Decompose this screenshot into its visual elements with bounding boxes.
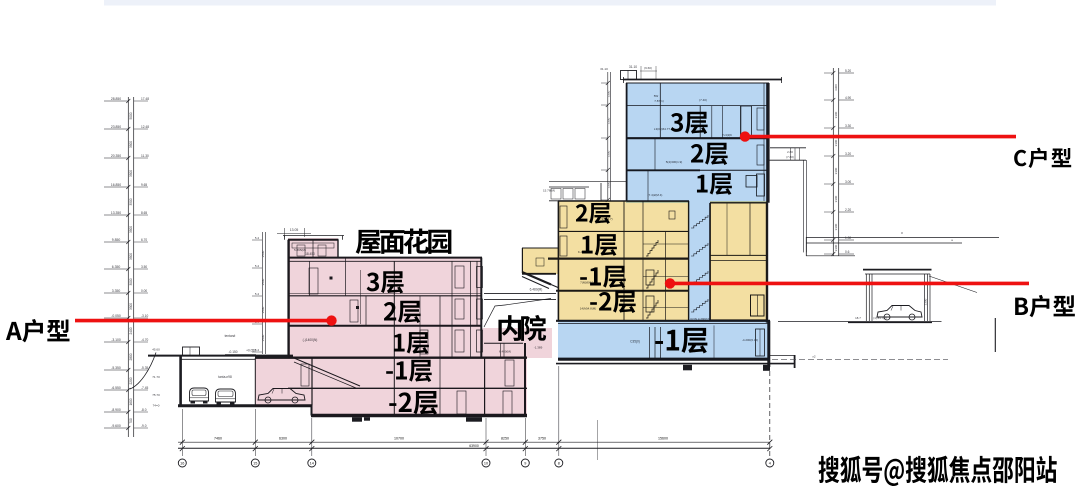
svg-text:3500: 3500 — [261, 250, 265, 257]
svg-text:-0.150: -0.150 — [228, 350, 237, 354]
svg-text:4.90: 4.90 — [845, 96, 851, 100]
svg-text:8: 8 — [558, 462, 560, 466]
svg-text:-3.10: -3.10 — [141, 314, 148, 318]
svg-text:10: 10 — [484, 462, 488, 466]
svg-text:3500: 3500 — [261, 334, 265, 341]
svg-text:3300: 3300 — [129, 303, 133, 310]
svg-text:8250: 8250 — [501, 437, 509, 441]
svg-text:3300: 3300 — [606, 181, 610, 188]
svg-text:tanta-n98: tanta-n98 — [218, 375, 232, 379]
svg-text:0.6: 0.6 — [845, 250, 850, 254]
svg-text:3500: 3500 — [129, 253, 133, 260]
svg-text:tentan#: tentan# — [225, 334, 236, 338]
svg-text:63900: 63900 — [469, 444, 479, 448]
svg-text:3300: 3300 — [834, 223, 838, 230]
svg-text:+0.050: +0.050 — [246, 349, 256, 353]
svg-text:74=0: 74=0 — [153, 404, 160, 408]
svg-text:x2: x2 — [812, 355, 816, 359]
svg-text:2.20: 2.20 — [845, 208, 851, 212]
svg-text:71.70: 71.70 — [152, 375, 160, 379]
svg-text:3300: 3300 — [606, 117, 610, 124]
svg-text:-6.550: -6.550 — [111, 386, 121, 390]
svg-text:700: 700 — [129, 418, 133, 424]
svg-text:5.4: 5.4 — [255, 292, 260, 296]
svg-text:3300: 3300 — [606, 150, 610, 157]
svg-text:5000: 5000 — [129, 112, 133, 119]
svg-text:5.4: 5.4 — [255, 264, 260, 268]
svg-text:-0.050: -0.050 — [111, 314, 121, 318]
svg-text:3.50: 3.50 — [141, 265, 147, 269]
svg-text:3500: 3500 — [129, 226, 133, 233]
svg-text:13.05: 13.05 — [290, 228, 299, 232]
svg-text:2200: 2200 — [129, 377, 133, 384]
svg-text:6.350: 6.350 — [112, 265, 121, 269]
svg-text:(7.80): (7.80) — [786, 155, 794, 159]
svg-text:18.7: 18.7 — [855, 316, 861, 320]
svg-text:31.10: 31.10 — [600, 67, 608, 71]
svg-text:3500: 3500 — [129, 170, 133, 177]
svg-text:1600: 1600 — [129, 398, 133, 405]
svg-text:5.20: 5.20 — [845, 69, 851, 73]
svg-text:13.350: 13.350 — [111, 211, 121, 215]
svg-text:6300: 6300 — [279, 437, 287, 441]
svg-text:16: 16 — [180, 462, 184, 466]
svg-text:3300: 3300 — [606, 90, 610, 97]
svg-text:75.70: 75.70 — [152, 393, 160, 397]
svg-text:17.48: 17.48 — [141, 97, 149, 101]
svg-text:3300: 3300 — [834, 139, 838, 146]
svg-text:3.00: 3.00 — [845, 180, 851, 184]
svg-text:3500: 3500 — [129, 141, 133, 148]
svg-text:20.350: 20.350 — [111, 154, 121, 158]
svg-text:9.65: 9.65 — [141, 183, 147, 187]
svg-text:3300: 3300 — [834, 195, 838, 202]
svg-text:3500: 3500 — [261, 306, 265, 313]
svg-text:3300: 3300 — [834, 167, 838, 174]
svg-text:45.60: 45.60 — [152, 348, 160, 352]
svg-text:-7.45: -7.45 — [141, 386, 148, 390]
svg-text:15.78(M): 15.78(M) — [543, 189, 555, 193]
svg-text:6.70: 6.70 — [141, 238, 147, 242]
svg-text:10700: 10700 — [394, 437, 404, 441]
svg-text:3.30: 3.30 — [845, 124, 851, 128]
svg-text:-8.0: -8.0 — [141, 408, 147, 412]
svg-text:-5.35: -5.35 — [141, 366, 148, 370]
svg-text:4: 4 — [769, 462, 771, 466]
svg-text:14: 14 — [310, 462, 314, 466]
svg-text:3300: 3300 — [834, 244, 838, 251]
svg-text:-3.100: -3.100 — [111, 338, 121, 342]
svg-text:2300: 2300 — [924, 298, 928, 305]
svg-text:15600: 15600 — [658, 437, 668, 441]
svg-text:-8.900: -8.900 — [111, 408, 121, 412]
svg-text:15: 15 — [253, 462, 257, 466]
svg-text:11.30: 11.30 — [141, 154, 149, 158]
svg-text:(9.60): (9.60) — [644, 66, 652, 70]
svg-text:9: 9 — [524, 462, 526, 466]
svg-text:12.48: 12.48 — [141, 125, 149, 129]
svg-text:3300: 3300 — [834, 84, 838, 91]
svg-text:3.350: 3.350 — [112, 289, 121, 293]
svg-text:6.480(M): 6.480(M) — [530, 288, 543, 292]
svg-text:3000: 3000 — [129, 278, 133, 285]
svg-text:-9.0: -9.0 — [141, 424, 147, 428]
svg-text:7460: 7460 — [214, 437, 222, 441]
svg-text:-9.600: -9.600 — [111, 424, 121, 428]
svg-text:0.00: 0.00 — [141, 289, 147, 293]
svg-text:31.10: 31.10 — [629, 65, 637, 69]
svg-text:3500: 3500 — [261, 278, 265, 285]
svg-text:9.850: 9.850 — [112, 238, 121, 242]
svg-text:5.4: 5.4 — [255, 236, 260, 240]
svg-text:16.850: 16.850 — [111, 183, 121, 187]
svg-text:3750: 3750 — [538, 437, 546, 441]
svg-text:-4.70: -4.70 — [141, 338, 148, 342]
svg-text:2400: 2400 — [129, 327, 133, 334]
svg-text:28.850: 28.850 — [111, 97, 121, 101]
svg-text:3300: 3300 — [834, 111, 838, 118]
svg-text:2.80: 2.80 — [787, 150, 793, 154]
svg-text:23.850: 23.850 — [111, 125, 121, 129]
svg-text:2800: 2800 — [129, 353, 133, 360]
svg-text:8.65: 8.65 — [141, 211, 147, 215]
svg-text:3500: 3500 — [129, 198, 133, 205]
svg-text:3.20: 3.20 — [845, 152, 851, 156]
svg-text:-5.350: -5.350 — [111, 366, 121, 370]
